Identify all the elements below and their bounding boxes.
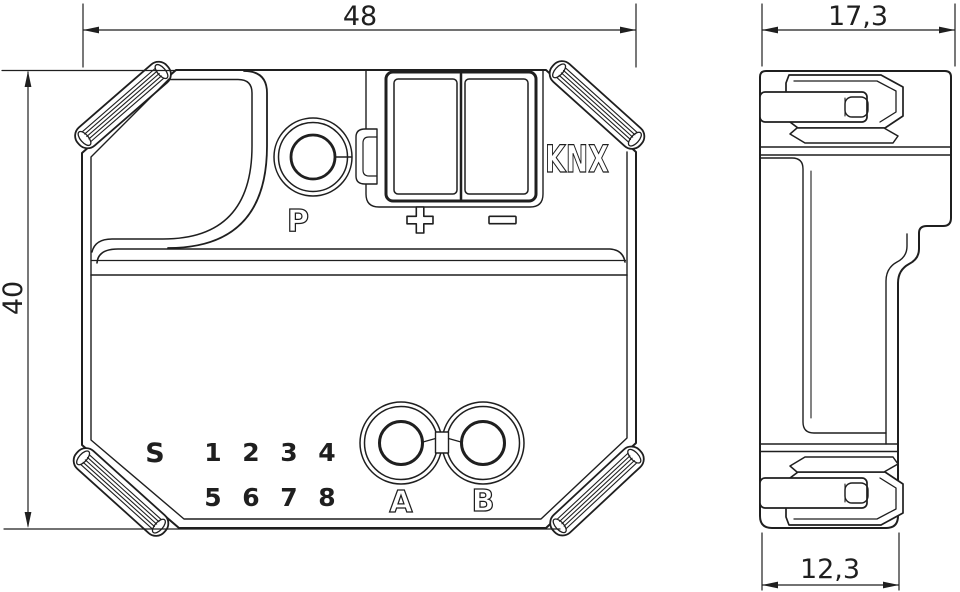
depth-top-dimension: 17,3 bbox=[762, 1, 955, 66]
s-label: S bbox=[145, 438, 164, 469]
arrowhead-left bbox=[762, 27, 778, 34]
grommet-a-label: A bbox=[389, 485, 413, 520]
programming-button-label: P bbox=[287, 204, 309, 239]
arrowhead-right bbox=[939, 27, 955, 34]
depth-bottom-dimension-value: 12,3 bbox=[800, 554, 860, 585]
width-dimension: 48 bbox=[83, 1, 636, 67]
channel-8: 8 bbox=[318, 483, 335, 512]
drawing-canvas: P KNX S 1 2 3 4 5 6 7 8 bbox=[0, 0, 960, 592]
grommet-b-label: B bbox=[472, 484, 495, 519]
channel-3: 3 bbox=[280, 438, 297, 467]
grommet-bridge bbox=[436, 432, 449, 453]
arrowhead-left bbox=[762, 582, 778, 589]
height-dimension-value: 40 bbox=[0, 281, 29, 315]
depth-bottom-dimension: 12,3 bbox=[762, 533, 899, 590]
channel-2: 2 bbox=[242, 438, 259, 467]
dimensional-drawing: P KNX S 1 2 3 4 5 6 7 8 bbox=[0, 0, 960, 592]
channel-4: 4 bbox=[318, 438, 335, 467]
side-view bbox=[760, 71, 951, 528]
front-view: P KNX S 1 2 3 4 5 6 7 8 bbox=[69, 57, 649, 541]
channel-7: 7 bbox=[280, 483, 297, 512]
depth-top-dimension-value: 17,3 bbox=[828, 1, 888, 32]
arrowhead-up bbox=[25, 71, 32, 87]
width-dimension-value: 48 bbox=[343, 1, 377, 32]
knx-label: KNX bbox=[545, 138, 609, 181]
arrowhead-right bbox=[620, 27, 636, 34]
channel-6: 6 bbox=[242, 483, 259, 512]
arrowhead-left bbox=[83, 27, 99, 34]
arrowhead-down bbox=[25, 512, 32, 528]
channel-1: 1 bbox=[204, 438, 221, 467]
arrowhead-right bbox=[883, 582, 899, 589]
minus-symbol bbox=[489, 216, 516, 223]
channel-5: 5 bbox=[204, 483, 221, 512]
